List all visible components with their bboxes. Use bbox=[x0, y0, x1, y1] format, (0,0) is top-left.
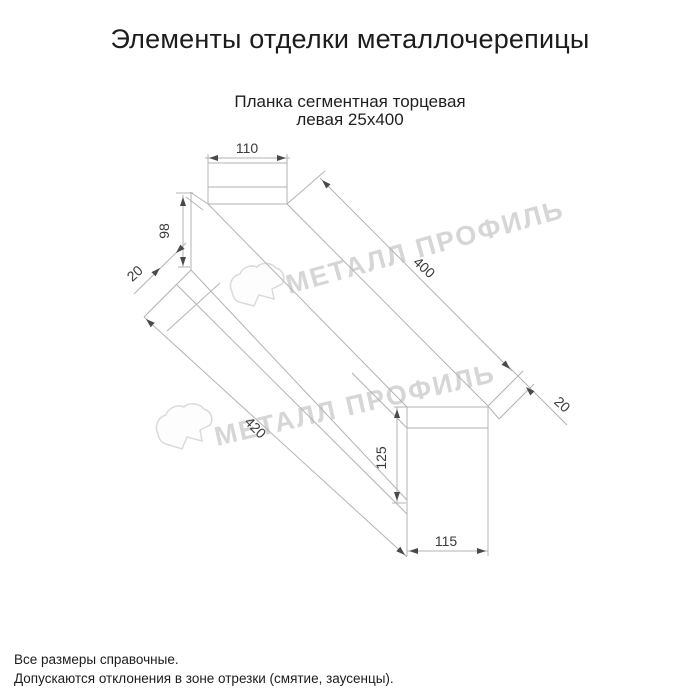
dim-label-bottom-width: 115 bbox=[435, 533, 458, 549]
watermark-logo-icon bbox=[230, 263, 283, 306]
watermark-lower: МЕТАЛЛ ПРОФИЛЬ bbox=[156, 358, 498, 452]
dim-label-left-fold: 20 bbox=[124, 262, 146, 284]
page: Элементы отделки металлочерепицы Планка … bbox=[0, 0, 700, 700]
dim-label-top-width: 110 bbox=[236, 140, 259, 156]
footer-note-1: Все размеры справочные. bbox=[14, 650, 394, 669]
dim-label-right-height: 125 bbox=[373, 446, 389, 470]
watermark-logo-icon bbox=[156, 404, 211, 449]
footer-notes: Все размеры справочные. Допускаются откл… bbox=[14, 650, 394, 688]
dimension-arrows bbox=[144, 155, 534, 557]
technical-drawing: МЕТАЛЛ ПРОФИЛЬ МЕТАЛЛ ПРОФИЛЬ bbox=[0, 0, 700, 700]
watermark-upper: МЕТАЛЛ ПРОФИЛЬ bbox=[230, 194, 567, 306]
dim-label-left-height: 98 bbox=[156, 223, 172, 239]
footer-note-2: Допускаются отклонения в зоне отрезки (с… bbox=[14, 669, 394, 688]
